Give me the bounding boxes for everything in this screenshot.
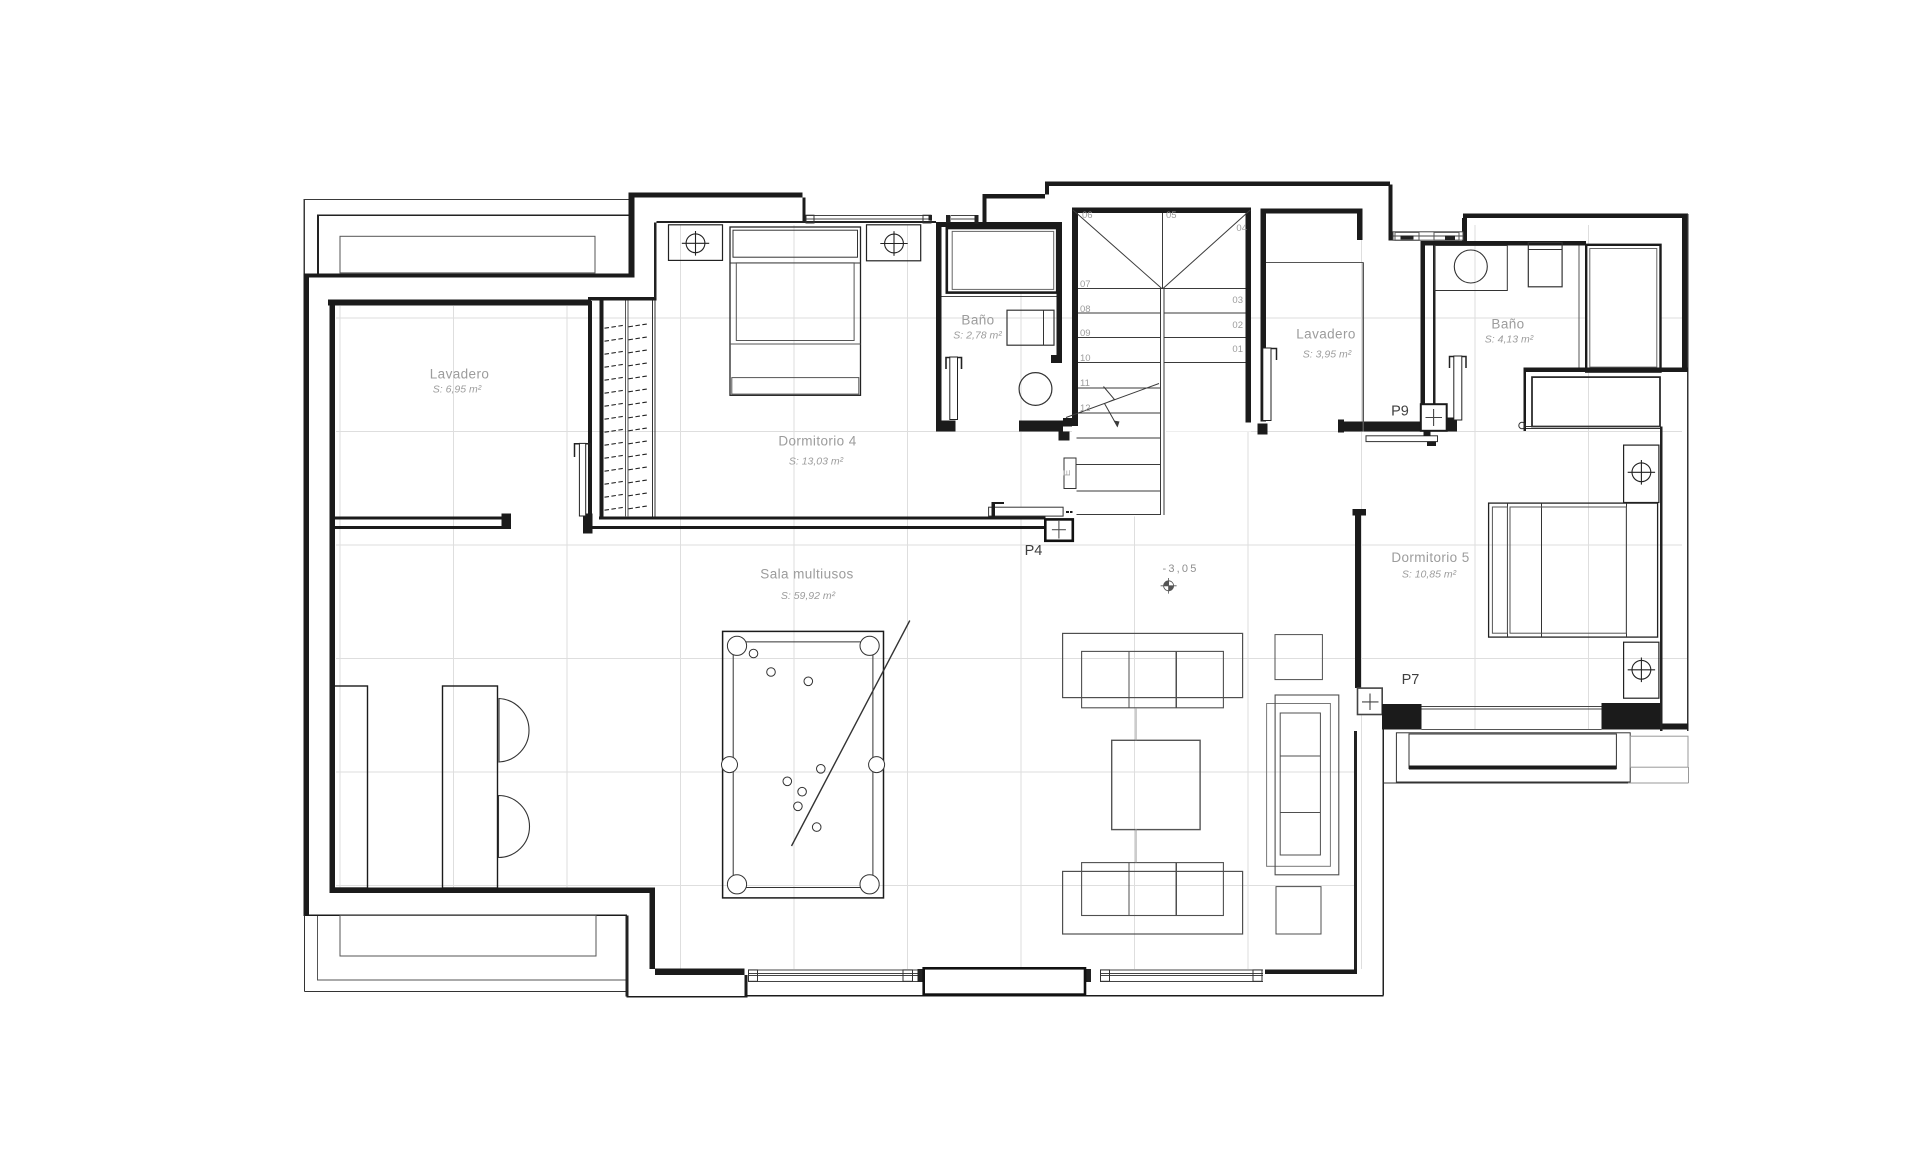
svg-text:Lavadero: Lavadero (1296, 327, 1356, 342)
svg-text:Baño: Baño (961, 313, 994, 328)
svg-text:S: 3,95 m²: S: 3,95 m² (1303, 349, 1352, 361)
svg-text:S: 13,03 m²: S: 13,03 m² (789, 456, 844, 468)
svg-text:Dormitorio 5: Dormitorio 5 (1391, 550, 1469, 565)
svg-text:11: 11 (1080, 378, 1090, 389)
svg-text:12: 12 (1080, 403, 1091, 414)
svg-text:03: 03 (1232, 295, 1243, 306)
svg-text:P9: P9 (1391, 404, 1409, 420)
svg-text:06: 06 (1082, 210, 1093, 221)
svg-text:08: 08 (1080, 304, 1091, 315)
svg-text:S: 6,95 m²: S: 6,95 m² (433, 384, 482, 396)
svg-text:E: E (1062, 470, 1073, 476)
svg-text:10: 10 (1080, 353, 1091, 364)
svg-text:04: 04 (1236, 223, 1247, 234)
svg-text:S: 10,85 m²: S: 10,85 m² (1402, 569, 1457, 581)
svg-text:P4: P4 (1025, 543, 1043, 559)
svg-text:02: 02 (1232, 320, 1243, 331)
svg-text:S: 2,78 m²: S: 2,78 m² (953, 330, 1002, 342)
svg-text:S: 4,13 m²: S: 4,13 m² (1485, 334, 1534, 346)
svg-text:05: 05 (1166, 210, 1177, 221)
svg-text:S: 59,92 m²: S: 59,92 m² (781, 590, 836, 602)
svg-text:Sala multiusos: Sala multiusos (760, 567, 853, 582)
svg-text:Baño: Baño (1491, 317, 1524, 332)
svg-text:Dormitorio 4: Dormitorio 4 (778, 434, 856, 449)
svg-text:07: 07 (1080, 279, 1091, 290)
svg-text:P7: P7 (1402, 672, 1420, 688)
svg-text:Lavadero: Lavadero (430, 367, 490, 382)
svg-text:01: 01 (1232, 344, 1243, 355)
svg-text:-3,05: -3,05 (1162, 563, 1198, 575)
svg-text:09: 09 (1080, 328, 1091, 339)
